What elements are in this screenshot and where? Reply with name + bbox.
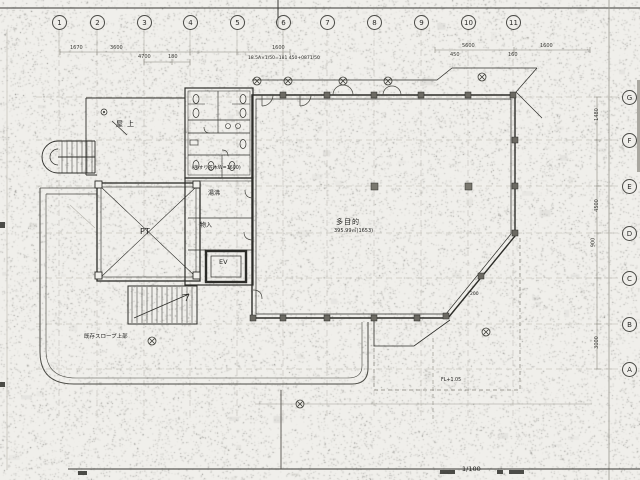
dim-right-3000: 3000 [595,336,600,349]
room-label-rooftop: 屋上 [116,121,138,128]
grid-column-bubble-9: 9 [414,15,429,30]
grid-row-bubble-d: D [622,226,637,241]
grid-column-bubble-4: 4 [183,15,198,30]
dim-top-450: 450 [450,53,460,58]
hall-walls [252,68,542,390]
dim-top-1600a: 1600 [272,46,285,51]
walkway-parapet [40,188,368,384]
columns [250,92,518,321]
dim-right-900: 900 [591,238,596,248]
dim-top-180: 180 [168,55,178,60]
dim-right-1480: 1480 [595,108,600,121]
room-label-kitchenette: 湯沸 [208,191,220,197]
grid-lines [36,30,616,418]
grid-row-bubble-e: E [622,179,637,194]
annotation-calc-note: 18.5A×1/50=181 450+0871/50 [248,57,320,62]
grid-row-bubble-g: G [622,90,637,105]
grid-column-bubble-3: 3 [137,15,152,30]
dim-top-1600b: 1600 [540,44,553,49]
grid-row-bubble-a: A [622,362,637,377]
annotation-step-note: 200 [470,293,479,298]
grid-column-bubble-8: 8 [367,15,382,30]
dim-top-1670: 1670 [70,46,83,51]
plan-linework [0,0,640,480]
scanned-floor-plan-sheet: 1 2 3 4 5 6 7 8 9 10 11 G F E D C B A 屋上… [0,0,640,480]
sheet-borders [0,0,640,480]
room-label-elevator: EV [219,259,228,266]
annotation-level-note: FL+1.05 [441,379,461,384]
grid-row-bubble-f: F [622,133,637,148]
dim-top-160: 160 [508,53,518,58]
annotation-existing-slope: 既存スロープ上部 [84,335,128,341]
grid-column-bubble-7: 7 [320,15,335,30]
stairs-roof-room [42,98,197,324]
room-label-hall: 多目的 [336,219,360,226]
dim-right-4500: 4500 [595,199,600,212]
door-swings [204,85,401,299]
grid-column-bubble-11: 11 [506,15,521,30]
grid-row-bubble-b: B [622,317,637,332]
scan-artifacts [0,222,524,475]
grid-column-bubble-6: 6 [276,15,291,30]
grid-column-bubble-1: 1 [52,15,67,30]
grid-row-bubble-c: C [622,271,637,286]
dim-top-3600: 3600 [110,46,123,51]
scale-label: 1/100 [462,466,481,473]
room-label-hall-area: 395.99㎡(1653) [334,229,373,234]
grid-column-bubble-10: 10 [461,15,476,30]
room-label-storage: 物入 [200,223,212,229]
annotation-handrail-note: (手すり笠木W=1600) [192,167,241,172]
grid-column-bubble-5: 5 [230,15,245,30]
room-label-pt-shaft: PT [140,228,150,236]
grid-column-bubble-2: 2 [90,15,105,30]
vent-marker-symbols [148,73,490,408]
dim-top-5600: 5600 [462,44,475,49]
dim-top-4700: 4700 [138,55,151,60]
service-core [95,88,253,285]
